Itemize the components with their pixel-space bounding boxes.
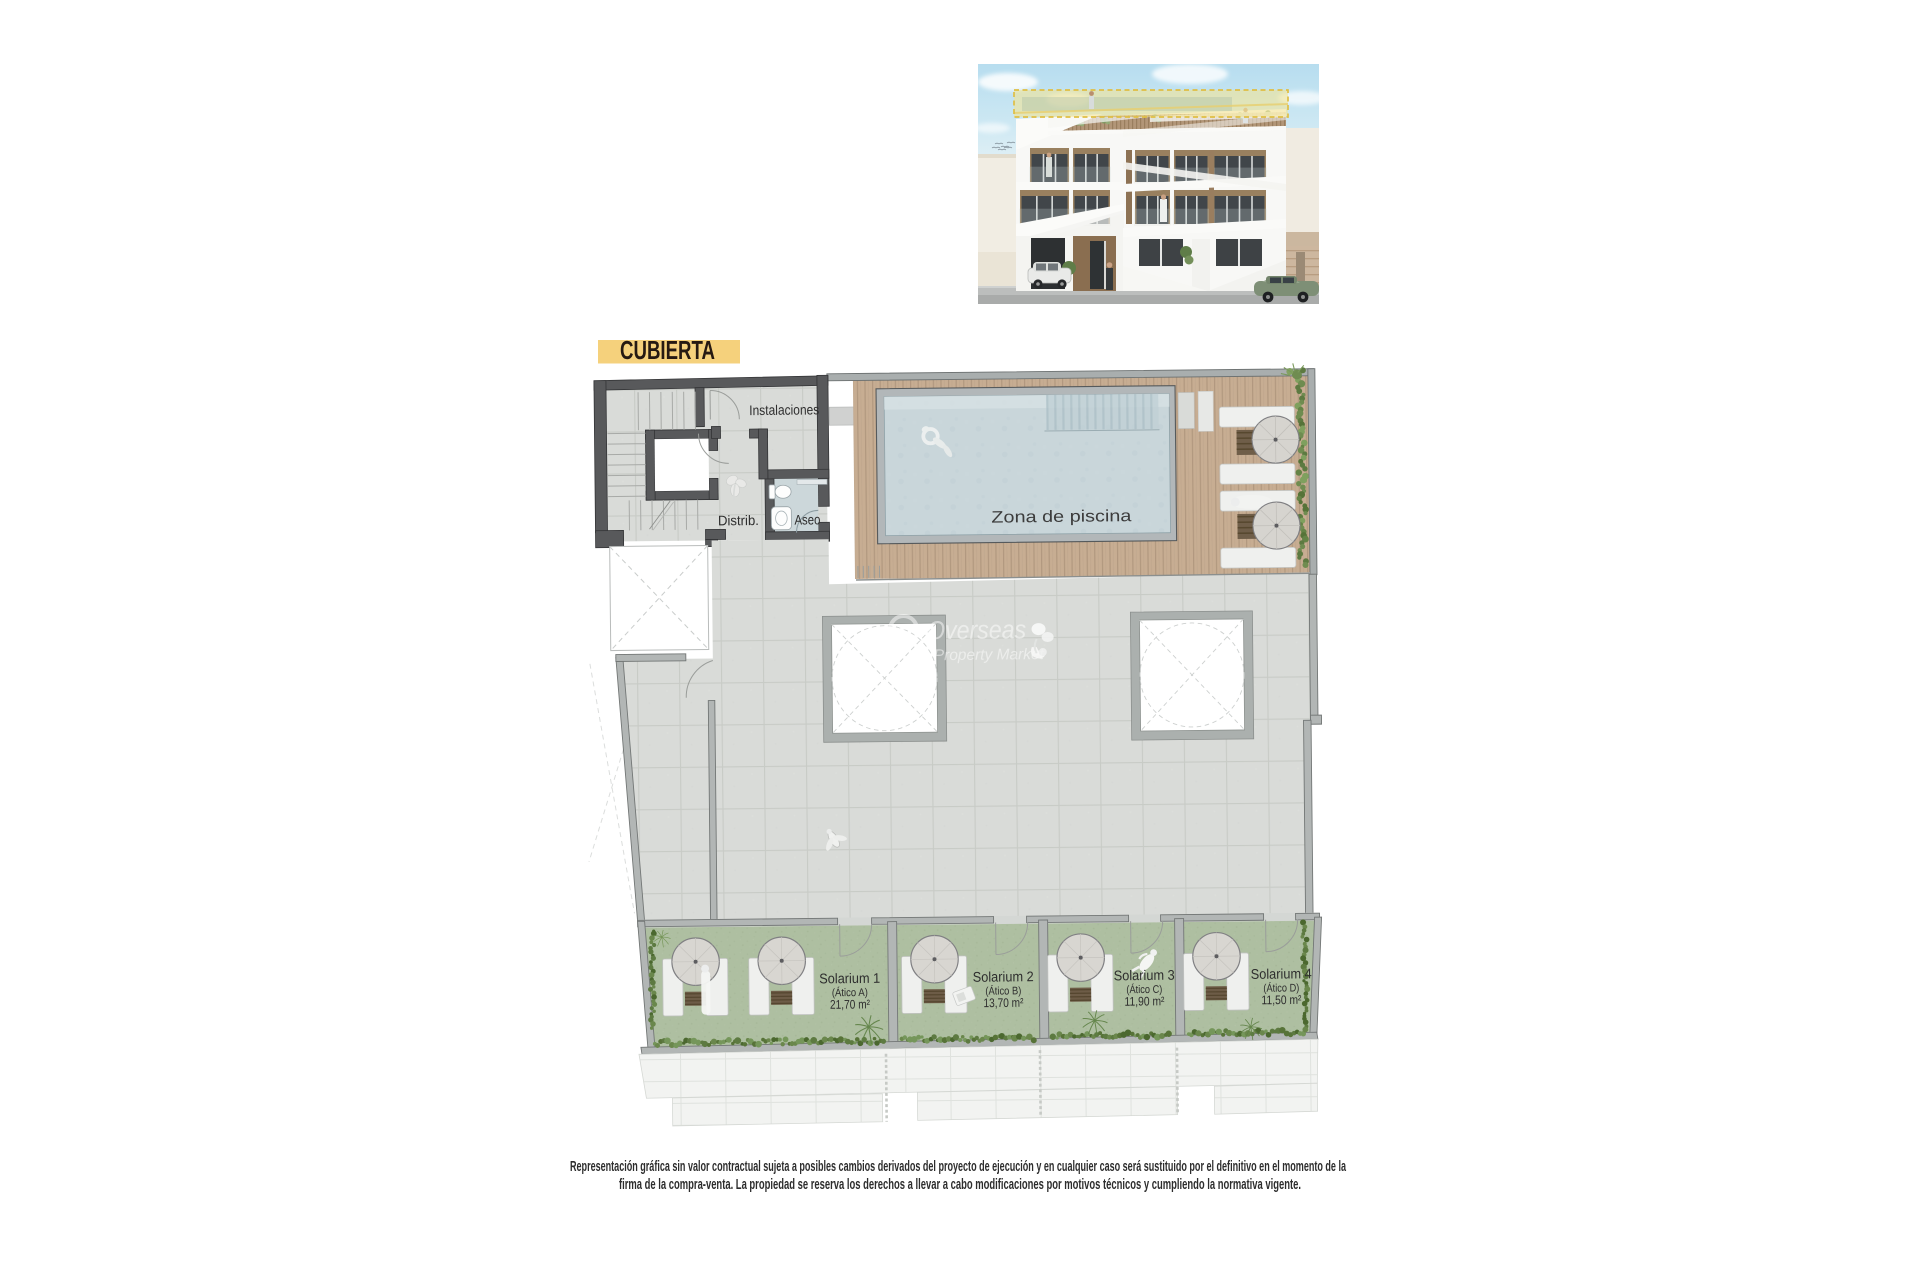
svg-text:11,90 m²: 11,90 m²	[1124, 994, 1164, 1008]
svg-text:Solarium 2: Solarium 2	[973, 968, 1034, 985]
svg-text:Property Market: Property Market	[934, 646, 1045, 664]
svg-text:Distrib.: Distrib.	[718, 512, 759, 528]
svg-text:13,70 m²: 13,70 m²	[983, 996, 1023, 1010]
svg-text:Solarium 4: Solarium 4	[1251, 965, 1312, 982]
svg-text:21,70 m²: 21,70 m²	[830, 997, 870, 1011]
svg-text:firma de la compra-venta. La p: firma de la compra-venta. La propiedad s…	[619, 1176, 1301, 1193]
svg-text:Solarium 1: Solarium 1	[819, 970, 880, 987]
svg-text:11,50 m²: 11,50 m²	[1261, 993, 1301, 1007]
svg-text:Instalaciones: Instalaciones	[749, 401, 819, 418]
svg-text:Representación gráfica sin val: Representación gráfica sin valor contrac…	[570, 1158, 1346, 1175]
svg-text:Aseo: Aseo	[794, 511, 820, 527]
svg-text:Zona de piscina: Zona de piscina	[991, 507, 1132, 526]
svg-text:Solarium 3: Solarium 3	[1114, 967, 1175, 984]
svg-text:Overseas: Overseas	[927, 614, 1026, 645]
svg-text:CUBIERTA: CUBIERTA	[620, 335, 715, 365]
